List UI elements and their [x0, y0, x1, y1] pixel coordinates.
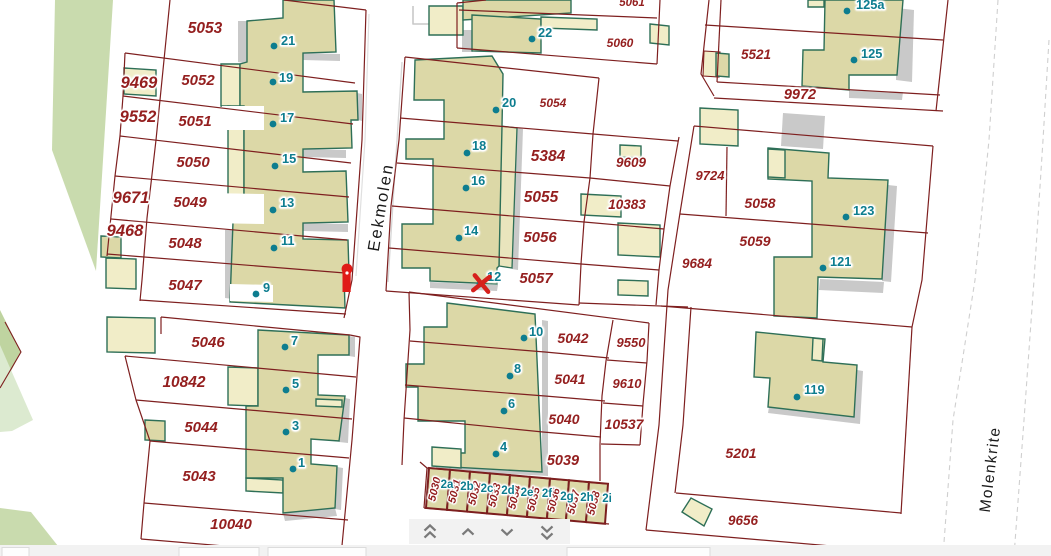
- svg-text:5046: 5046: [191, 334, 225, 351]
- svg-text:123: 123: [853, 203, 874, 218]
- svg-text:5048: 5048: [168, 235, 202, 252]
- svg-text:10383: 10383: [608, 197, 646, 212]
- svg-text:5059: 5059: [739, 233, 770, 249]
- svg-text:8: 8: [514, 361, 521, 376]
- svg-text:9724: 9724: [696, 168, 726, 183]
- svg-text:9656: 9656: [728, 513, 759, 528]
- svg-text:119: 119: [804, 382, 825, 397]
- svg-text:5: 5: [292, 376, 299, 391]
- svg-text:9469: 9469: [121, 74, 159, 92]
- svg-text:125a: 125a: [856, 0, 885, 12]
- svg-text:10842: 10842: [162, 374, 205, 391]
- svg-text:5041: 5041: [554, 371, 585, 387]
- svg-text:4: 4: [500, 439, 508, 454]
- svg-text:125: 125: [861, 46, 882, 61]
- svg-text:10040: 10040: [210, 516, 252, 533]
- svg-text:5051: 5051: [178, 113, 211, 130]
- svg-text:9610: 9610: [613, 376, 643, 391]
- svg-text:5049: 5049: [173, 194, 207, 211]
- svg-text:5055: 5055: [524, 189, 559, 206]
- svg-text:5058: 5058: [744, 195, 775, 211]
- svg-text:121: 121: [830, 254, 851, 269]
- svg-text:22: 22: [538, 25, 552, 40]
- svg-text:2h: 2h: [580, 492, 593, 504]
- svg-text:2e: 2e: [521, 487, 534, 499]
- svg-text:10537: 10537: [605, 416, 645, 432]
- svg-text:5060: 5060: [607, 36, 634, 50]
- svg-text:2c: 2c: [481, 483, 494, 495]
- svg-text:5044: 5044: [184, 419, 218, 436]
- svg-text:2f: 2f: [542, 488, 552, 500]
- svg-text:3: 3: [292, 418, 299, 433]
- svg-text:15: 15: [282, 151, 296, 166]
- svg-text:5050: 5050: [176, 154, 210, 171]
- svg-text:5201: 5201: [725, 445, 756, 461]
- svg-text:9609: 9609: [616, 155, 647, 170]
- svg-text:17: 17: [280, 110, 294, 125]
- svg-text:6: 6: [508, 396, 515, 411]
- svg-text:2d: 2d: [501, 485, 514, 497]
- svg-text:2a: 2a: [441, 479, 454, 491]
- svg-text:5042: 5042: [557, 330, 588, 346]
- svg-text:9550: 9550: [617, 335, 647, 350]
- svg-text:5043: 5043: [182, 468, 216, 485]
- svg-text:5061: 5061: [619, 0, 645, 9]
- svg-text:9552: 9552: [120, 108, 157, 126]
- svg-text:2i: 2i: [602, 493, 612, 505]
- svg-text:13: 13: [280, 195, 294, 210]
- svg-text:7: 7: [291, 333, 298, 348]
- svg-text:5039: 5039: [547, 453, 579, 469]
- svg-text:5384: 5384: [531, 148, 566, 165]
- svg-text:14: 14: [464, 223, 479, 238]
- svg-text:9468: 9468: [107, 222, 145, 240]
- svg-text:5052: 5052: [181, 72, 215, 89]
- svg-text:9684: 9684: [682, 256, 713, 271]
- svg-text:19: 19: [279, 70, 293, 85]
- svg-text:20: 20: [502, 95, 516, 110]
- svg-text:11: 11: [281, 233, 295, 248]
- svg-text:9: 9: [263, 280, 270, 295]
- svg-text:9972: 9972: [784, 87, 816, 103]
- svg-text:5521: 5521: [741, 47, 771, 62]
- svg-text:5056: 5056: [523, 229, 557, 246]
- svg-text:2g: 2g: [560, 491, 573, 503]
- svg-text:5040: 5040: [548, 411, 579, 427]
- svg-text:5053: 5053: [188, 20, 223, 37]
- svg-text:2b: 2b: [460, 481, 473, 493]
- svg-text:5054: 5054: [540, 96, 567, 110]
- svg-text:5057: 5057: [519, 270, 553, 287]
- svg-text:10: 10: [529, 324, 543, 339]
- svg-text:1: 1: [298, 455, 305, 470]
- svg-text:21: 21: [281, 33, 295, 48]
- svg-text:16: 16: [471, 173, 485, 188]
- svg-text:5047: 5047: [168, 277, 202, 294]
- svg-text:9671: 9671: [113, 189, 150, 207]
- svg-text:18: 18: [472, 138, 486, 153]
